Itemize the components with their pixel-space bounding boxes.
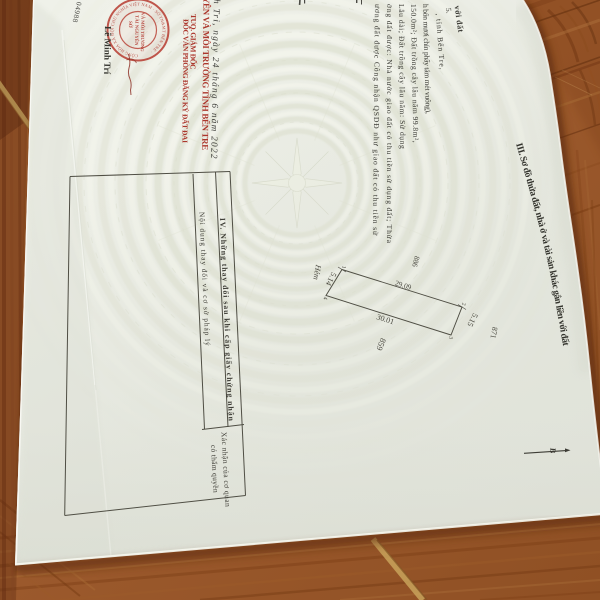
svg-text:SỞ: SỞ [127, 21, 133, 28]
svg-text:Lê Minh Trí: Lê Minh Trí [102, 26, 113, 75]
svg-text:VÀ MÔI TRƯỜNG: VÀ MÔI TRƯỜNG [140, 12, 146, 52]
svg-text:ĐỐC VĂN PHÒNG ĐĂNG KÝ ĐẤT ĐAI: ĐỐC VĂN PHÒNG ĐĂNG KÝ ĐẤT ĐAI [180, 19, 191, 143]
svg-text:Lâu dài; Đất trồng cây lâu năm: Lâu dài; Đất trồng cây lâu năm: Sử dụng [397, 4, 407, 149]
svg-text:5.: 5. [444, 7, 454, 14]
svg-text:TÀI NGUYÊN: TÀI NGUYÊN [133, 15, 140, 46]
svg-text:ởng đất được: Nhà nước giao đấ: ởng đất được: Nhà nước giao đất có thu t… [385, 4, 394, 244]
